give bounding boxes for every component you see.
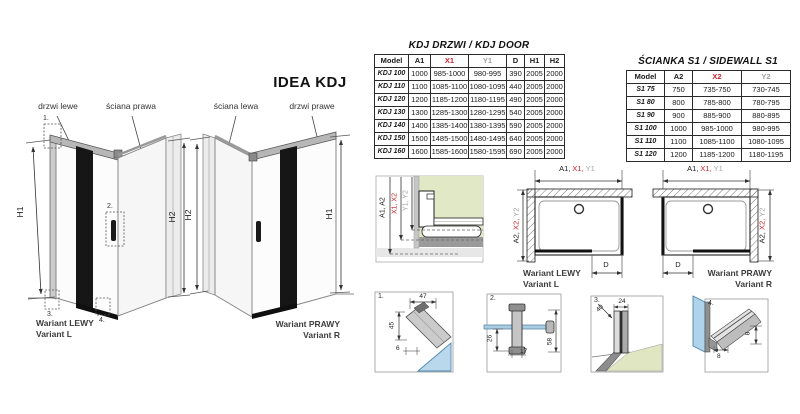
value-cell: 985-1000 (693, 123, 742, 136)
spec-sheet: IDEA KDJ drzwi lewe ściana prawa ściana … (0, 0, 800, 414)
dim-y1: Y1 (714, 164, 723, 173)
dim-y2: Y2 (758, 208, 767, 217)
value-cell: 2000 (545, 68, 565, 81)
table-row: S1 80800785-800780-795 (627, 97, 791, 110)
value-cell: 690 (507, 146, 525, 159)
value-cell: 1000 (665, 123, 693, 136)
value-cell: 2005 (525, 133, 545, 146)
top-view-left-variant1: Wariant LEWY (523, 269, 581, 278)
variant-right-line2: Variant R (240, 331, 340, 340)
table-row: KDJ 15015001485-15001480-149564020052000 (375, 133, 565, 146)
value-cell: 1100 (409, 81, 431, 94)
h2-dim-label-right: H2 (183, 200, 193, 230)
table-row: S1 90900885-900880-895 (627, 110, 791, 123)
column-header: H2 (545, 55, 565, 68)
value-cell: 1180-1195 (469, 94, 507, 107)
column-header: A2 (665, 71, 693, 84)
detail-2-length-dim: 58 (547, 332, 554, 352)
value-cell: 2000 (545, 107, 565, 120)
dim-x1: X1, (572, 164, 583, 173)
model-cell: S1 100 (627, 123, 665, 136)
top-view-right-variant1: Wariant PRAWY (672, 269, 772, 278)
value-cell: 1585-1600 (431, 146, 469, 159)
value-cell: 1280-1295 (469, 107, 507, 120)
value-cell: 750 (665, 84, 693, 97)
section-dim-y-label: Y1, Y2 (403, 186, 410, 216)
dim-x1: X1, (700, 164, 711, 173)
right-door-label: drzwi prawe (284, 102, 340, 111)
model-cell: KDJ 140 (375, 120, 409, 133)
model-cell: S1 120 (627, 149, 665, 162)
table-row: KDJ 16016001585-16001580-159569020052000 (375, 146, 565, 159)
value-cell: 785-800 (693, 97, 742, 110)
value-cell: 2000 (545, 133, 565, 146)
value-cell: 1200 (409, 94, 431, 107)
callout-1-label: 1. (43, 115, 49, 123)
door-table-title: KDJ DRZWI / KDJ DOOR (374, 40, 564, 51)
column-header: Y2 (742, 71, 791, 84)
dim-a1: A1, (559, 164, 570, 173)
top-view-left-variant2: Variant L (523, 280, 559, 289)
column-header: H1 (525, 55, 545, 68)
detail-3-width-dim: 24 (613, 298, 631, 305)
model-cell: KDJ 130 (375, 107, 409, 120)
value-cell: 590 (507, 120, 525, 133)
left-door-label: drzwi lewe (34, 102, 82, 111)
h2-dim-label-left: H2 (167, 202, 177, 232)
value-cell: 1200 (665, 149, 693, 162)
model-cell: KDJ 100 (375, 68, 409, 81)
dim-y2: Y2 (512, 208, 521, 217)
variant-left-line2: Variant L (36, 330, 72, 339)
value-cell: 2000 (545, 120, 565, 133)
table-row: KDJ 14014001385-14001380-139559020052000 (375, 120, 565, 133)
value-cell: 1600 (409, 146, 431, 159)
model-cell: S1 80 (627, 97, 665, 110)
detail-4-height-dim: 8 (745, 324, 752, 344)
side-dim-label-left-view: A2, X2, Y2 (512, 196, 521, 256)
value-cell: 980-995 (742, 123, 791, 136)
column-header: D (507, 55, 525, 68)
callout-4-label: 4. (99, 317, 105, 325)
sidewall-table-section: ŚCIANKA S1 / SIDEWALL S1 ModelA2X2Y2S1 7… (626, 56, 790, 162)
door-table-section: KDJ DRZWI / KDJ DOOR ModelA1X1Y1DH1H2KDJ… (374, 40, 564, 159)
table-row: KDJ 1001000985-1000980-99539020052000 (375, 68, 565, 81)
value-cell: 2005 (525, 94, 545, 107)
detail-1-number: 1. (378, 293, 384, 301)
dim-a2: A2, (758, 232, 767, 243)
value-cell: 1180-1195 (742, 149, 791, 162)
value-cell: 1085-1100 (431, 81, 469, 94)
value-cell: 1080-1095 (742, 136, 791, 149)
h1-dim-label-right: H1 (324, 199, 334, 229)
dim-y1: Y1 (586, 164, 595, 173)
value-cell: 1485-1500 (431, 133, 469, 146)
table-header-row: ModelA2X2Y2 (627, 71, 791, 84)
column-header: A1 (409, 55, 431, 68)
table-row: S1 12012001185-12001180-1195 (627, 149, 791, 162)
detail-2-depth-dim: 26 (487, 329, 494, 349)
value-cell: 1085-1100 (693, 136, 742, 149)
value-cell: 985-1000 (431, 68, 469, 81)
value-cell: 1480-1495 (469, 133, 507, 146)
table-header-row: ModelA1X1Y1DH1H2 (375, 55, 565, 68)
d-dim-label-right-view: D (670, 261, 686, 269)
model-cell: KDJ 110 (375, 81, 409, 94)
door-table: ModelA1X1Y1DH1H2KDJ 1001000985-1000980-9… (374, 54, 565, 159)
variant-right-line1: Wariant PRAWY (240, 320, 340, 329)
detail-1-drawing (375, 292, 453, 372)
value-cell: 2005 (525, 81, 545, 94)
model-cell: S1 75 (627, 84, 665, 97)
detail-1-glass-dim: 6 (396, 345, 400, 352)
detail-2-width-dim: 17 (520, 348, 527, 355)
model-cell: S1 110 (627, 136, 665, 149)
detail-1-height-dim: 45 (389, 316, 396, 336)
top-dim-label-left-view: A1,X1,Y1 (546, 165, 610, 173)
sidewall-table-title: ŚCIANKA S1 / SIDEWALL S1 (626, 56, 790, 67)
side-dim-label-right-view: A2, X2, Y2 (758, 196, 767, 256)
column-header: X1 (431, 55, 469, 68)
value-cell: 1380-1395 (469, 120, 507, 133)
value-cell: 540 (507, 107, 525, 120)
column-header: Model (627, 71, 665, 84)
value-cell: 1580-1595 (469, 146, 507, 159)
model-cell: KDJ 120 (375, 94, 409, 107)
variant-left-line1: Wariant LEWY (36, 319, 94, 328)
model-cell: KDJ 150 (375, 133, 409, 146)
detail-4-drawing (693, 296, 768, 372)
section-dim-x-label: X1, X2 (392, 189, 399, 219)
d-dim-label-left-view: D (598, 261, 614, 269)
table-row: KDJ 11011001085-11001080-109544020052000 (375, 81, 565, 94)
value-cell: 880-895 (742, 110, 791, 123)
table-row: KDJ 13013001285-13001280-129554020052000 (375, 107, 565, 120)
h1-dim-label-left: H1 (15, 197, 25, 227)
left-enclosure-drawing (26, 116, 190, 320)
value-cell: 2005 (525, 120, 545, 133)
value-cell: 1185-1200 (431, 94, 469, 107)
value-cell: 1080-1095 (469, 81, 507, 94)
model-cell: KDJ 160 (375, 146, 409, 159)
value-cell: 1400 (409, 120, 431, 133)
detail-2-number: 2. (490, 295, 496, 303)
top-view-left-drawing (517, 170, 632, 278)
dim-a2: A2, (512, 232, 521, 243)
page-title: IDEA KDJ (258, 75, 362, 92)
value-cell: 2005 (525, 107, 545, 120)
value-cell: 735-750 (693, 84, 742, 97)
section-dim-a-label: A1, A2 (380, 193, 387, 223)
right-wall-label-left-drawing: ściana prawa (102, 102, 160, 111)
column-header: Model (375, 55, 409, 68)
column-header: X2 (693, 71, 742, 84)
value-cell: 2000 (545, 81, 565, 94)
value-cell: 980-995 (469, 68, 507, 81)
table-row: S1 75750735-750730-745 (627, 84, 791, 97)
value-cell: 1185-1200 (693, 149, 742, 162)
table-row: S1 1001000985-1000980-995 (627, 123, 791, 136)
dim-a1: A1, (687, 164, 698, 173)
value-cell: 2000 (545, 146, 565, 159)
value-cell: 1285-1300 (431, 107, 469, 120)
left-wall-label-right-drawing: ściana lewa (210, 102, 262, 111)
detail-4-number: 4. (708, 300, 714, 308)
column-header: Y1 (469, 55, 507, 68)
value-cell: 440 (507, 81, 525, 94)
sidewall-table: ModelA2X2Y2S1 75750735-750730-745S1 8080… (626, 70, 791, 162)
value-cell: 780-795 (742, 97, 791, 110)
value-cell: 1300 (409, 107, 431, 120)
value-cell: 730-745 (742, 84, 791, 97)
detail-4-width-dim: 8 (717, 353, 721, 360)
value-cell: 2005 (525, 146, 545, 159)
value-cell: 490 (507, 94, 525, 107)
value-cell: 640 (507, 133, 525, 146)
value-cell: 2000 (545, 94, 565, 107)
value-cell: 1000 (409, 68, 431, 81)
detail-1-width-dim: 47 (414, 293, 432, 300)
value-cell: 2005 (525, 68, 545, 81)
callout-2-label: 2. (107, 203, 113, 211)
value-cell: 390 (507, 68, 525, 81)
value-cell: 1100 (665, 136, 693, 149)
dim-x2: X2, (512, 219, 521, 230)
value-cell: 885-900 (693, 110, 742, 123)
table-row: KDJ 12012001185-12001180-119549020052000 (375, 94, 565, 107)
value-cell: 1385-1400 (431, 120, 469, 133)
dim-x2: X2, (758, 219, 767, 230)
model-cell: S1 90 (627, 110, 665, 123)
value-cell: 1500 (409, 133, 431, 146)
top-dim-label-right-view: A1,X1,Y1 (674, 165, 738, 173)
value-cell: 900 (665, 110, 693, 123)
top-view-right-variant2: Variant R (672, 280, 772, 289)
table-row: S1 11011001085-11001080-1095 (627, 136, 791, 149)
value-cell: 800 (665, 97, 693, 110)
